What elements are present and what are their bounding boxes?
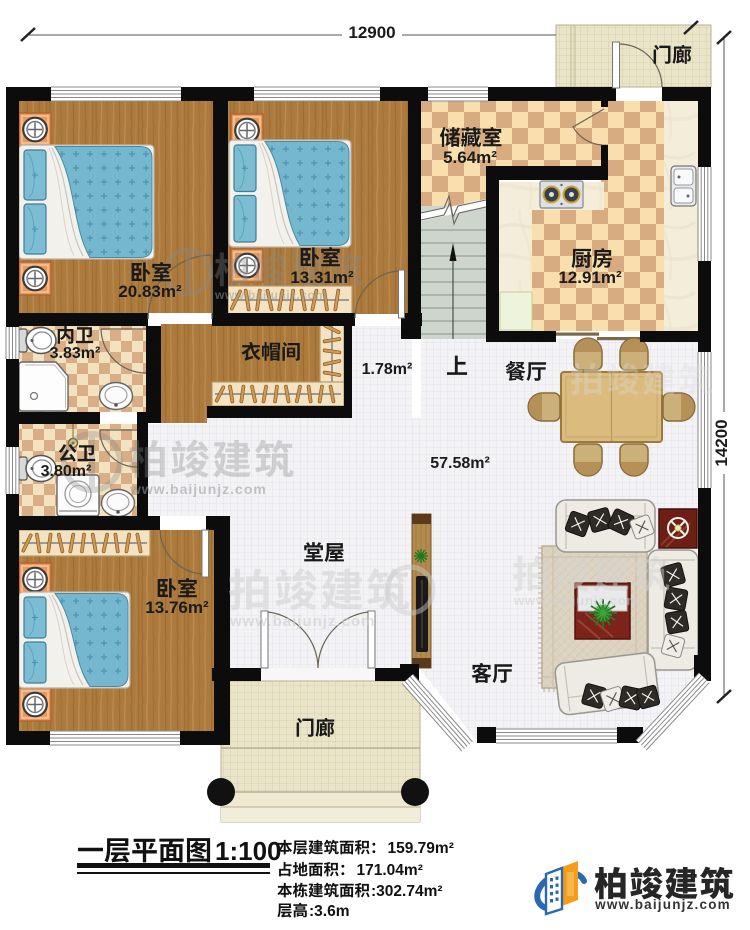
svg-text:1.78m²: 1.78m² [362,361,413,378]
svg-text:1:100: 1:100 [215,836,282,866]
svg-text:57.58m²: 57.58m² [430,455,490,472]
svg-text:5.64m²: 5.64m² [443,148,497,167]
svg-text:171.04m²: 171.04m² [357,862,423,879]
svg-text:14200: 14200 [712,419,731,466]
svg-text::3.6m: :3.6m [309,903,350,920]
svg-text:www.baijunjz.com: www.baijunjz.com [129,481,267,497]
svg-text:13.31m²: 13.31m² [290,268,354,287]
svg-text:www.baijunjz.com: www.baijunjz.com [594,897,731,912]
svg-text:13.76m²: 13.76m² [145,598,209,617]
svg-text:www.baijunjz.com: www.baijunjz.com [214,288,327,302]
svg-text:20.83m²: 20.83m² [118,282,182,301]
svg-text:3.83m²: 3.83m² [50,345,101,362]
svg-text:www.baijunjz.com: www.baijunjz.com [513,593,639,608]
svg-text::302.74m²: :302.74m² [371,883,443,900]
svg-text:12900: 12900 [348,23,395,42]
svg-text:www.baijunjz.com: www.baijunjz.com [229,613,375,630]
svg-text:12.91m²: 12.91m² [558,268,622,287]
svg-text:3.80m²: 3.80m² [41,463,92,480]
svg-text:159.79m²: 159.79m² [388,840,454,857]
